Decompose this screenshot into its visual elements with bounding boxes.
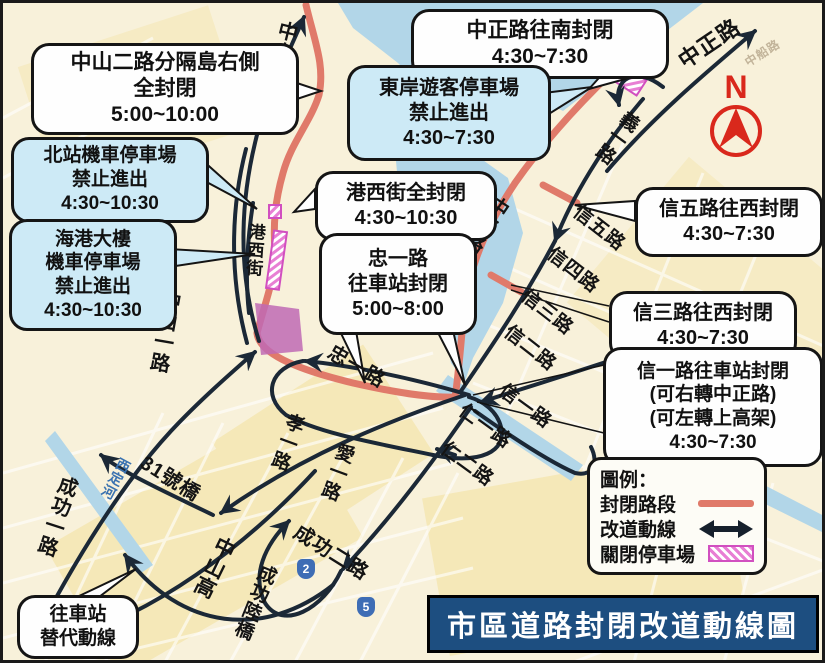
callout-text: 忠一路 bbox=[362, 247, 434, 272]
legend-row-detour: 改道動線 bbox=[600, 516, 754, 541]
compass-needle-icon bbox=[707, 102, 765, 158]
callout-text: 北站機車停車場 bbox=[37, 144, 182, 168]
callout-gangxi-closure: 港西街全封閉 4:30~10:30 bbox=[315, 171, 497, 241]
legend-title: 圖例： bbox=[600, 465, 657, 492]
compass-north-label: N bbox=[705, 73, 767, 102]
closed-road-swatch-icon bbox=[698, 500, 754, 507]
callout-alt-route-station: 往車站 替代動線 bbox=[17, 595, 139, 659]
callout-text: 禁止進出 bbox=[66, 168, 154, 192]
callout-text: 4:30~10:30 bbox=[349, 206, 464, 231]
callout-text: 信一路往車站封閉 bbox=[631, 360, 795, 384]
route-shield: 5 bbox=[357, 597, 375, 617]
callout-text: 替代動線 bbox=[34, 627, 122, 651]
callout-text: 4:30~10:30 bbox=[55, 192, 165, 216]
legend-row-closed-parking: 關閉停車場 bbox=[600, 541, 754, 566]
callout-text: 往車站封閉 bbox=[342, 272, 454, 297]
callout-harbor-building-parking: 海港大樓 機車停車場 禁止進出 4:30~10:30 bbox=[9, 219, 177, 331]
callout-text: 中山二路分隔島右側 bbox=[65, 50, 266, 76]
callout-text: 禁止進出 bbox=[403, 101, 495, 126]
callout-text: 信五路往西封閉 bbox=[653, 197, 805, 222]
callout-zhongyi-closure: 忠一路 往車站封閉 5:00~8:00 bbox=[319, 233, 477, 335]
legend: 圖例： 封閉路段 改道動線 關閉停車場 bbox=[587, 457, 767, 575]
callout-text: 禁止進出 bbox=[49, 275, 137, 299]
callout-text: 5:00~8:00 bbox=[346, 297, 450, 322]
callout-text: 中正路往南封閉 bbox=[461, 18, 620, 44]
legend-title-row: 圖例： bbox=[600, 466, 754, 491]
map-title: 市區道路封閉改道動線圖 bbox=[447, 603, 799, 645]
callout-text: 東岸遊客停車場 bbox=[373, 76, 525, 101]
closed-parking-swatch-icon bbox=[708, 545, 754, 562]
callout-text: 信三路往西封閉 bbox=[627, 301, 779, 326]
route-shield-number: 5 bbox=[363, 600, 370, 614]
callout-text: 4:30~10:30 bbox=[38, 299, 148, 323]
callout-text: 機車停車場 bbox=[39, 251, 146, 275]
compass: N bbox=[705, 73, 767, 163]
callout-text: 港西街全封閉 bbox=[340, 181, 472, 206]
road-closure-map: 中山一路 中正路 義一路 中正路 港西街 信五路 信四路 信三路 信二路 信一路… bbox=[0, 0, 825, 663]
legend-label: 封閉路段 bbox=[600, 490, 676, 517]
callout-text: 往車站 bbox=[43, 603, 112, 627]
callout-text: 4:30~7:30 bbox=[397, 126, 501, 151]
route-shield-number: 2 bbox=[303, 562, 310, 576]
callout-text: 4:30~7:30 bbox=[677, 222, 781, 247]
callout-zhongshan2-closure: 中山二路分隔島右側 全封閉 5:00~10:00 bbox=[31, 43, 299, 135]
legend-label: 改道動線 bbox=[600, 515, 676, 542]
callout-text: (可左轉上高架) bbox=[644, 407, 783, 431]
legend-row-closed-road: 封閉路段 bbox=[600, 491, 754, 516]
callout-north-station-parking: 北站機車停車場 禁止進出 4:30~10:30 bbox=[11, 137, 209, 223]
callout-text: (可右轉中正路) bbox=[644, 383, 783, 407]
callout-text: 4:30~7:30 bbox=[663, 431, 762, 455]
callout-xin5-closure: 信五路往西封閉 4:30~7:30 bbox=[635, 187, 823, 257]
route-shield: 2 bbox=[297, 559, 315, 579]
callout-xin1-closure: 信一路往車站封閉 (可右轉中正路) (可左轉上高架) 4:30~7:30 bbox=[603, 347, 823, 467]
double-arrow-icon bbox=[698, 518, 754, 540]
callout-text: 5:00~10:00 bbox=[105, 102, 225, 128]
callout-text: 海港大樓 bbox=[49, 228, 137, 252]
callout-text: 全封閉 bbox=[128, 76, 203, 102]
legend-label: 關閉停車場 bbox=[600, 540, 695, 567]
callout-east-coast-parking: 東岸遊客停車場 禁止進出 4:30~7:30 bbox=[347, 65, 551, 161]
map-title-banner: 市區道路封閉改道動線圖 bbox=[427, 595, 819, 653]
